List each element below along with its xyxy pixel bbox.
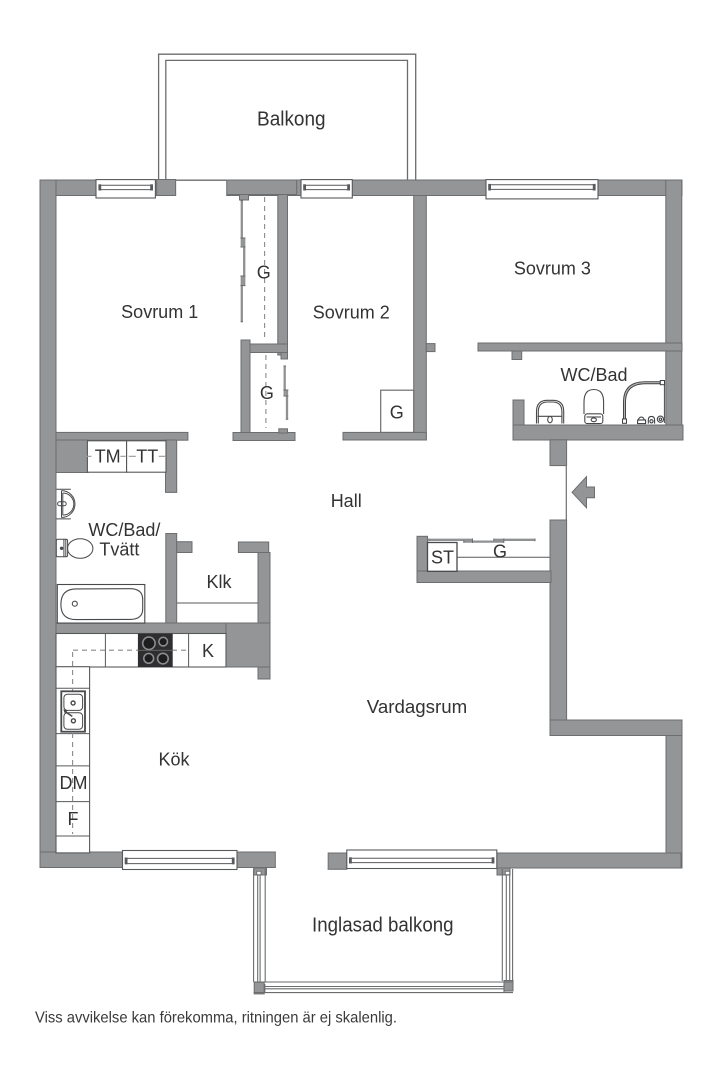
svg-text:Sovrum 1: Sovrum 1 bbox=[121, 302, 198, 322]
svg-text:WC/Bad: WC/Bad bbox=[560, 365, 627, 385]
svg-text:G: G bbox=[390, 403, 404, 423]
svg-text:Balkong: Balkong bbox=[257, 108, 326, 130]
svg-text:TT: TT bbox=[136, 446, 158, 466]
svg-text:Sovrum 3: Sovrum 3 bbox=[514, 259, 591, 279]
svg-text:Hall: Hall bbox=[331, 491, 362, 511]
svg-text:F: F bbox=[68, 809, 79, 829]
svg-text:Klk: Klk bbox=[206, 572, 232, 592]
svg-text:Vardagsrum: Vardagsrum bbox=[367, 697, 468, 717]
svg-text:Kök: Kök bbox=[158, 750, 190, 770]
svg-text:Inglasad balkong: Inglasad balkong bbox=[312, 914, 454, 936]
svg-text:DM: DM bbox=[60, 773, 88, 793]
svg-text:G: G bbox=[493, 542, 507, 562]
svg-text:TM: TM bbox=[95, 446, 121, 466]
svg-text:K: K bbox=[202, 641, 214, 661]
svg-text:WC/Bad/: WC/Bad/ bbox=[88, 520, 160, 540]
svg-text:G: G bbox=[257, 263, 271, 283]
svg-text:Viss avvikelse kan förekomma,: Viss avvikelse kan förekomma, ritningen … bbox=[35, 1010, 397, 1027]
svg-text:Tvätt: Tvätt bbox=[99, 540, 139, 560]
svg-text:ST: ST bbox=[431, 548, 454, 568]
svg-text:G: G bbox=[260, 383, 274, 403]
svg-text:Sovrum 2: Sovrum 2 bbox=[313, 302, 390, 322]
